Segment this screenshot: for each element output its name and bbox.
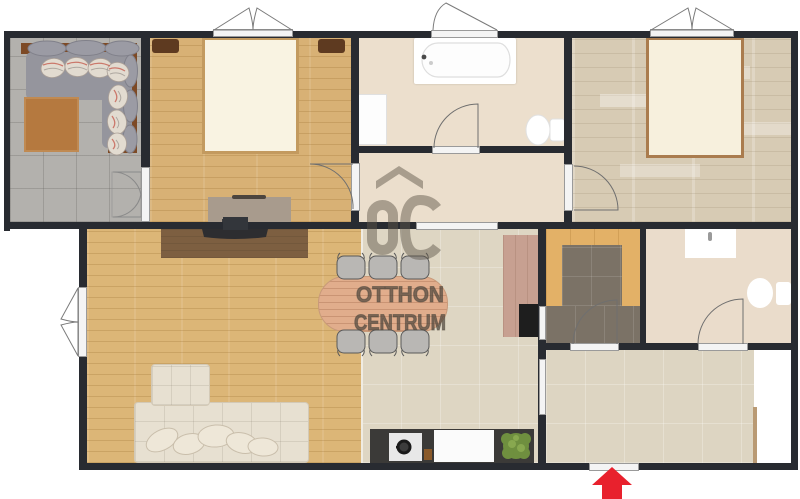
svg-text:OTTHON: OTTHON (356, 282, 444, 307)
svg-text:CENTRUM: CENTRUM (354, 310, 446, 335)
